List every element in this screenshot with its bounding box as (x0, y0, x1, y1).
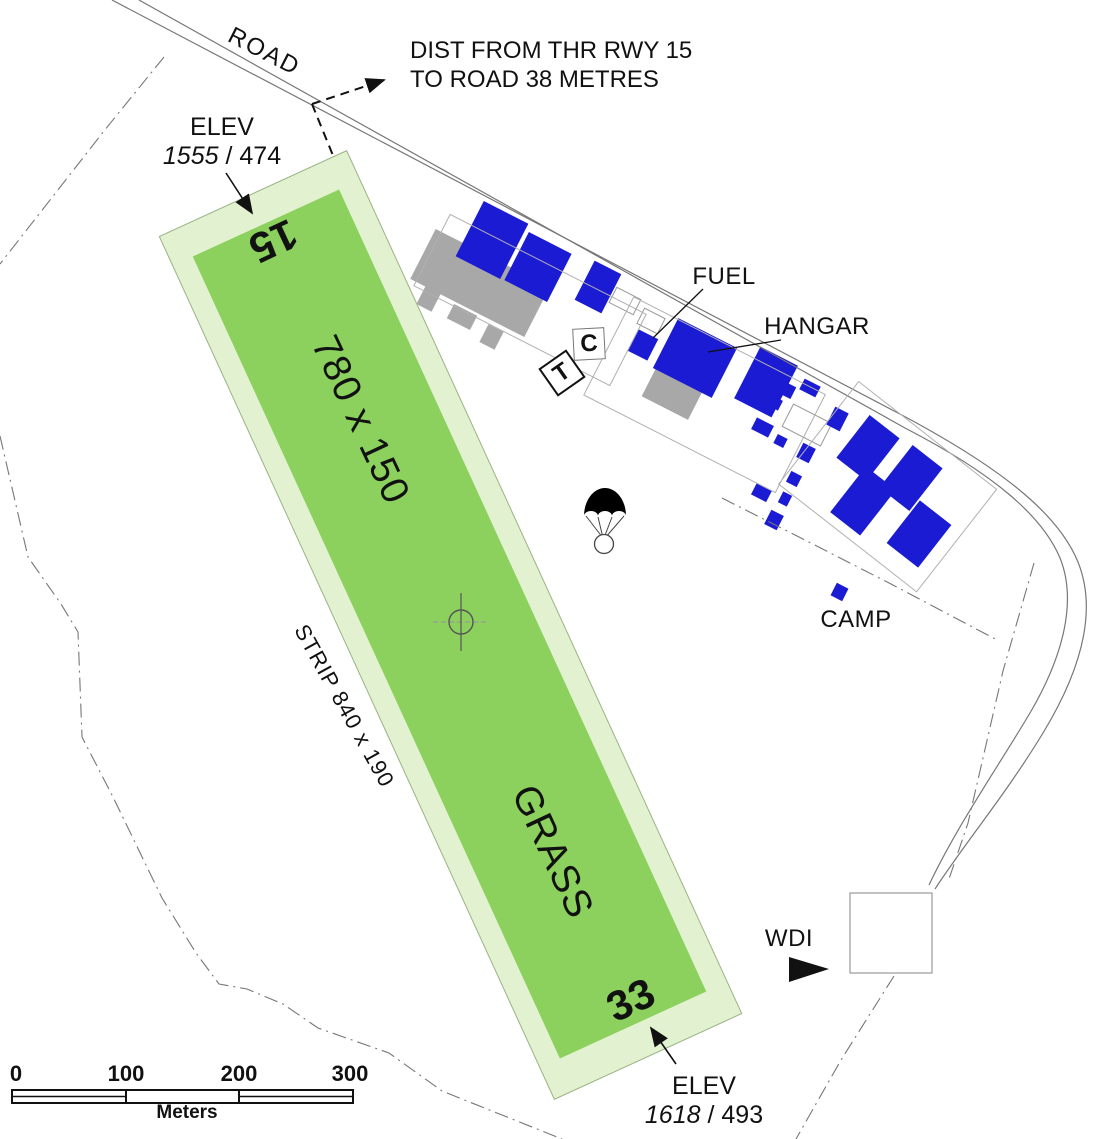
dist-measurement-line (312, 80, 384, 158)
scale-tick-300: 300 (332, 1061, 369, 1087)
wdi-triangle-icon (789, 957, 829, 982)
elev-33-title: ELEV (645, 1072, 763, 1101)
wdi-label: WDI (765, 925, 813, 953)
elev-15-label: ELEV 1555 / 474 (163, 113, 281, 171)
camp-label: CAMP (820, 606, 891, 634)
arp-icon (433, 593, 489, 651)
scale-unit-label: Meters (156, 1102, 217, 1124)
elev-33-value: 1618 / 493 (645, 1101, 763, 1130)
hangar-label: HANGAR (764, 313, 870, 341)
scale-tick-0: 0 (10, 1061, 22, 1087)
fuel-leader-line (653, 289, 703, 338)
fuel-label: FUEL (692, 263, 755, 291)
scale-tick-100: 100 (108, 1061, 145, 1087)
dist-line2: TO ROAD 38 METRES (410, 65, 692, 94)
boundary-line (0, 57, 1034, 1139)
elev-33-arrow (651, 1028, 676, 1064)
elev-15-title: ELEV (163, 113, 281, 142)
elev-33-label: ELEV 1618 / 493 (645, 1072, 763, 1130)
parachute-icon (584, 488, 626, 554)
dist-annotation: DIST FROM THR RWY 15 TO ROAD 38 METRES (410, 36, 692, 94)
c-marker-box: C (572, 327, 606, 361)
aerodrome-chart: ROAD DIST FROM THR RWY 15 TO ROAD 38 MET… (0, 0, 1101, 1139)
elev-15-arrow (226, 173, 252, 213)
scale-tick-200: 200 (221, 1061, 258, 1087)
elev-15-value: 1555 / 474 (163, 142, 281, 171)
dist-line1: DIST FROM THR RWY 15 (410, 36, 692, 65)
wdi-enclosure (850, 893, 932, 973)
